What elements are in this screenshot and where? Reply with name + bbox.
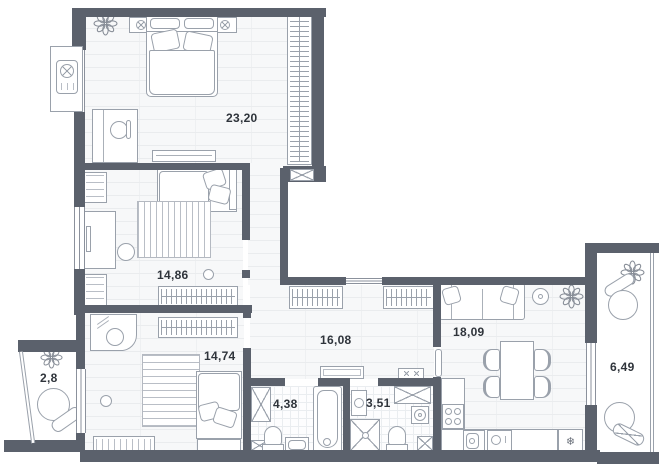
washer-dot-icon (418, 413, 422, 417)
floor-plan: 23,20 14,86 14,74 16,0 (0, 0, 671, 471)
wall (597, 452, 659, 464)
wall (242, 270, 250, 278)
office-chair (106, 328, 124, 346)
toilet (388, 426, 406, 446)
balcony-door-window (76, 369, 86, 433)
hangers-icon (161, 320, 235, 335)
wall (72, 8, 326, 17)
room-label-living: 18,09 (453, 325, 485, 339)
sink-drain-icon (469, 438, 475, 444)
hangers-icon (386, 289, 431, 306)
desk-edge (103, 110, 104, 162)
wall (433, 285, 441, 347)
lamp-icon (220, 20, 230, 30)
panel-mark-icon (404, 371, 409, 376)
dishwasher-glass-icon (505, 436, 506, 443)
wall (18, 340, 82, 352)
window (74, 207, 85, 269)
room-label-bathroom: 4,38 (273, 397, 298, 411)
console-inner (323, 369, 361, 376)
blanket (149, 50, 215, 95)
room-label-hallway: 16,08 (320, 333, 352, 347)
floor-hallway-vertical (248, 163, 281, 285)
cabinet (251, 387, 271, 422)
books (96, 439, 152, 450)
room-label-bedroom2: 14,86 (157, 268, 189, 282)
wardrobe (287, 13, 312, 165)
vent-shaft (290, 169, 314, 181)
room-label-wc: 3,51 (366, 396, 391, 410)
pillow (184, 18, 214, 29)
cabinet (417, 436, 433, 451)
sink-basin (354, 398, 364, 408)
balcony-door-window (586, 343, 596, 405)
shelf (83, 172, 107, 203)
dining-chair (534, 376, 551, 398)
tv-line (156, 155, 212, 156)
stove (442, 404, 464, 429)
dining-chair (483, 376, 500, 398)
burner-icon (445, 408, 452, 415)
wall (243, 313, 251, 318)
bathtub-drain-icon (323, 438, 331, 446)
cabinet (394, 386, 431, 404)
entrance-door (346, 278, 382, 284)
balcony-glazing (19, 351, 35, 443)
wardrobe (158, 286, 238, 307)
wall (74, 112, 85, 207)
wall (78, 163, 250, 170)
shower-drain-icon (362, 432, 369, 439)
toilet (264, 426, 282, 446)
hangers-icon (161, 289, 235, 304)
room-label-bedroom: 23,20 (226, 111, 258, 125)
dining-chair (483, 349, 500, 371)
pillow (150, 18, 180, 29)
dishwasher-plate-icon (491, 435, 501, 445)
wardrobe (289, 286, 343, 309)
ac-fan-icon (60, 64, 74, 78)
burner-icon (454, 408, 461, 415)
wall (343, 385, 350, 450)
wall (242, 163, 250, 240)
wall (280, 277, 346, 285)
burner-icon (454, 418, 461, 425)
balcony-glazing (650, 253, 654, 452)
monitor (86, 226, 91, 252)
books (86, 175, 104, 200)
room-label-bedroom3: 14,74 (204, 349, 236, 363)
wall-clock-icon (100, 395, 112, 407)
ac-vent-icon (61, 83, 74, 90)
smoke-detector-icon (203, 269, 214, 280)
wall (597, 243, 659, 253)
office-chair (117, 243, 135, 261)
door-leaf (435, 349, 442, 377)
dining-table (500, 341, 534, 400)
room-label-balcony-right: 6,49 (610, 360, 635, 374)
wall (312, 8, 324, 180)
wardrobe (383, 286, 434, 309)
wall (4, 440, 84, 452)
wall (280, 168, 288, 277)
dining-chair (534, 349, 551, 371)
wall (243, 348, 251, 452)
sofa-cushion-line (482, 289, 483, 319)
wardrobe (158, 317, 238, 338)
room-label-balcony-left: 2,8 (40, 371, 58, 385)
wall (585, 405, 597, 455)
wall (80, 450, 600, 462)
tv-console (152, 150, 216, 162)
wall (382, 277, 588, 285)
panel-mark-icon (414, 371, 419, 376)
hangers-icon (290, 16, 309, 162)
books (86, 277, 104, 305)
side-table-dot (538, 294, 543, 299)
wall (243, 378, 285, 386)
plant-icon (559, 284, 584, 309)
lamp-icon (136, 20, 146, 30)
chair-backrest (126, 120, 131, 139)
rug (142, 354, 200, 427)
burner-icon (445, 418, 452, 425)
hangers-icon (292, 289, 340, 306)
wall (433, 377, 441, 452)
wall (78, 305, 252, 313)
armchair (608, 290, 638, 320)
wall (72, 8, 86, 50)
sink-basin (288, 440, 306, 450)
wall (378, 378, 441, 386)
wall (585, 243, 597, 343)
shelf (83, 274, 107, 308)
rug (137, 201, 211, 258)
